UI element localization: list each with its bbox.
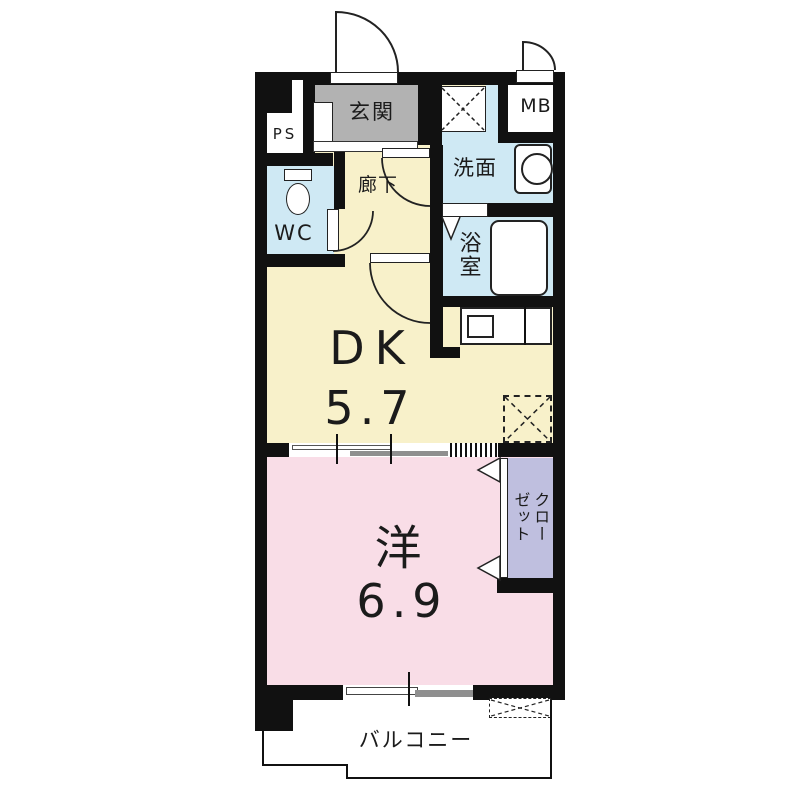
- wall-mid-vertical: [430, 145, 443, 358]
- dk-sliding-door-panel-2: [350, 451, 448, 456]
- closet-label-col-left: ゼット: [512, 492, 529, 543]
- balcony-label: バルコニー: [359, 729, 474, 751]
- kitchen-sink-icon: [467, 315, 494, 338]
- mb-door-sill: [516, 70, 554, 83]
- bathroom-door-sill: [442, 203, 488, 217]
- wall-kitchen-top: [430, 296, 553, 307]
- kitchen-counter-divider: [524, 307, 526, 345]
- wall-entrance-right: [418, 72, 442, 145]
- wall-kitchen-stub: [430, 347, 460, 358]
- ps-vent-slot: [292, 80, 303, 115]
- mb-door-arc: [523, 42, 555, 70]
- balcony-sliding-panel-2: [415, 690, 473, 697]
- wall-mb-left: [498, 72, 508, 134]
- shoe-cabinet: [313, 102, 333, 142]
- entrance-storage-hatched: [440, 86, 486, 132]
- wall-mb-bottom: [498, 132, 553, 143]
- entrance-label: 玄関: [349, 101, 395, 123]
- hallway-door-leaf: [382, 148, 430, 158]
- dk-label: DK: [329, 324, 415, 372]
- entrance-door-arc: [336, 12, 398, 72]
- wall-left: [255, 72, 267, 700]
- wall-wc-bottom: [267, 254, 345, 267]
- western-room-size-label: 6.9: [356, 577, 447, 625]
- closet-door-band: [500, 458, 508, 578]
- western-room-label: 洋: [375, 524, 422, 573]
- dk-size-label: 5.7: [324, 384, 415, 432]
- closet-label-col-right: クロー: [532, 492, 549, 543]
- washing-machine-drum-icon: [521, 153, 553, 185]
- wall-right: [553, 72, 565, 700]
- entrance-door-sill: [330, 72, 398, 84]
- bathroom-label: 浴室: [456, 231, 479, 279]
- pipe-space-label: PS: [273, 127, 298, 143]
- dk-door-leaf: [370, 253, 430, 263]
- closet-label: クロー ゼット: [512, 492, 549, 543]
- hallway-label: 廊下: [358, 176, 398, 196]
- floorplan: 玄関 PS 廊下 WC 洗面 浴室 MB DK 5.7 洋 6.9 クロー ゼッ…: [0, 0, 800, 800]
- wall-wc-right: [334, 152, 345, 209]
- meter-box-label: MB: [520, 97, 551, 117]
- washroom-label: 洗面: [453, 157, 497, 179]
- refrigerator-space-dashed: [503, 395, 552, 443]
- dk-sliding-door-panel-1: [292, 445, 391, 450]
- wall-bath-top: [488, 203, 553, 217]
- wall-bottom-left-block: [255, 685, 293, 731]
- toilet-tank-icon: [284, 169, 312, 181]
- evacuation-hatch-dashed: [489, 698, 551, 718]
- wall-partition-left-stub: [267, 443, 289, 457]
- toilet-bowl-icon: [286, 183, 310, 215]
- washroom-sliver: [486, 85, 498, 133]
- toilet-label: WC: [274, 222, 313, 244]
- wc-door-leaf: [327, 209, 339, 251]
- wall-partition-right: [498, 443, 553, 457]
- wall-closet-bottom: [497, 578, 553, 593]
- bathtub-icon: [490, 220, 548, 296]
- partition-hatched-band: [450, 443, 498, 457]
- wall-ps-bottom: [267, 153, 333, 166]
- balcony-sliding-panel-1: [346, 687, 418, 695]
